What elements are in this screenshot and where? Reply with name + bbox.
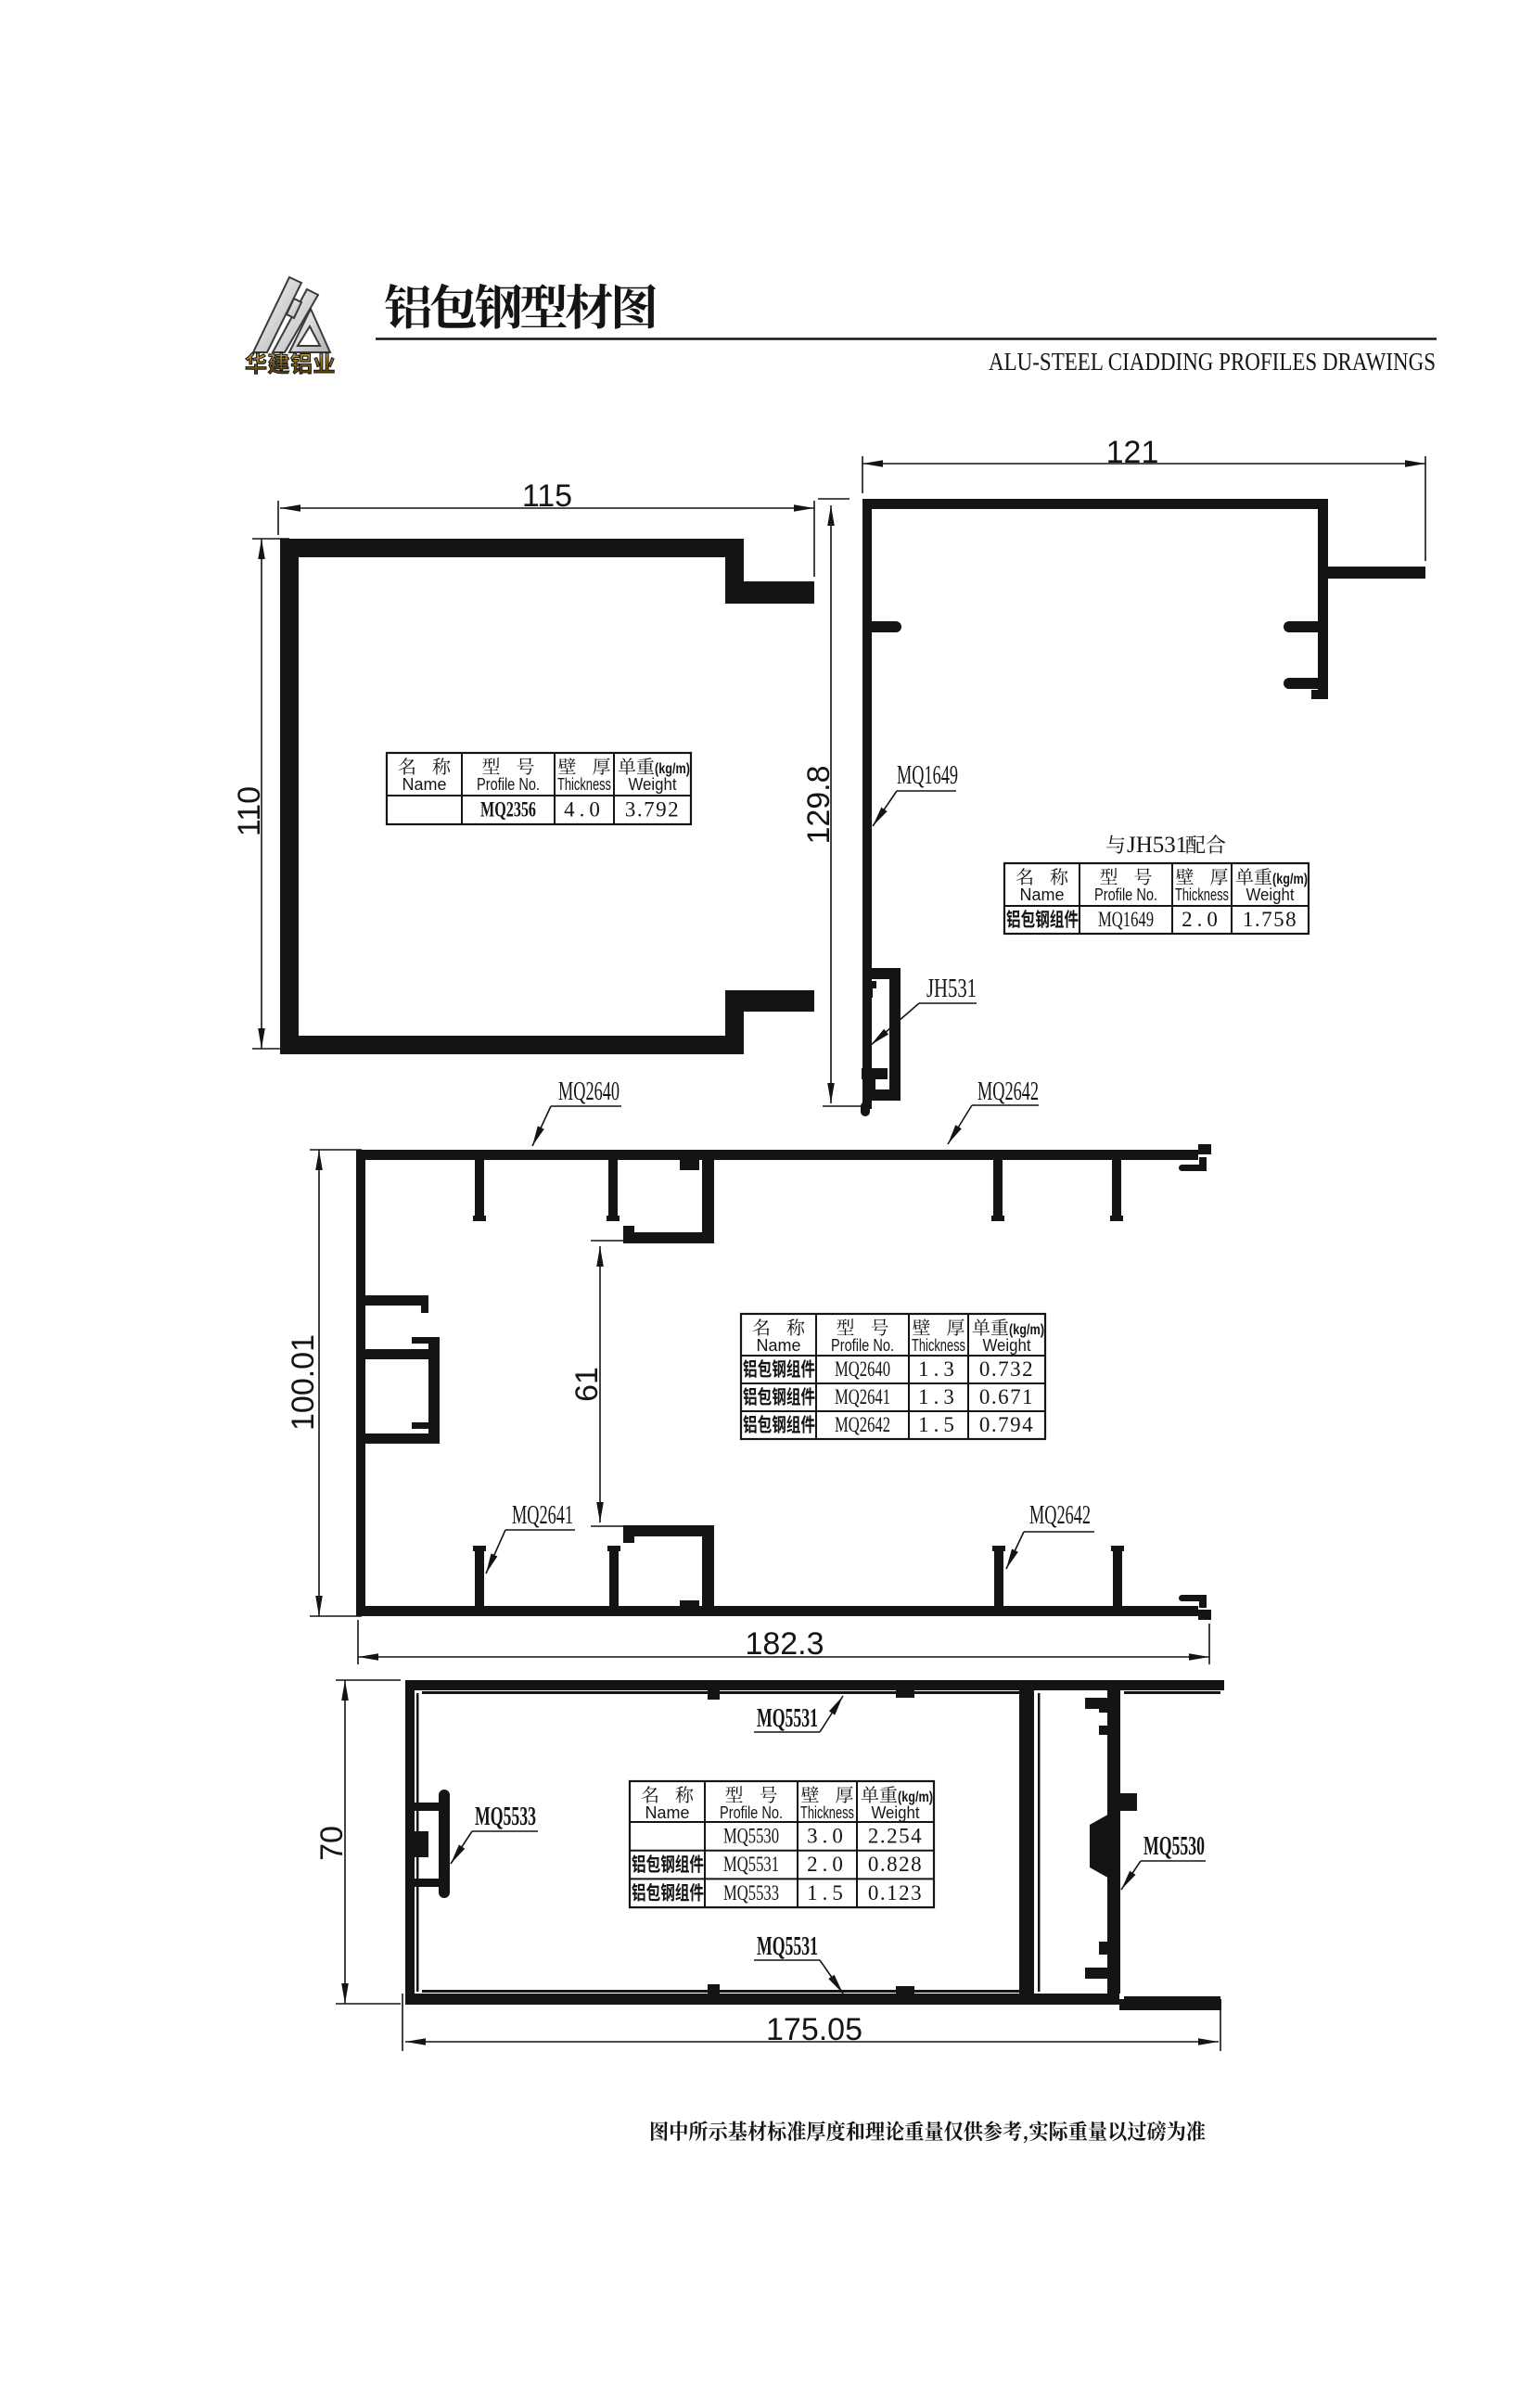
- svg-text:JH531: JH531: [926, 975, 977, 1003]
- svg-text:Weight: Weight: [1246, 885, 1295, 904]
- svg-text:2.0: 2.0: [807, 1853, 848, 1876]
- svg-text:MQ5533: MQ5533: [723, 1881, 779, 1905]
- svg-text:MQ2642: MQ2642: [835, 1413, 890, 1436]
- svg-text:Name: Name: [757, 1336, 801, 1355]
- svg-text:1.5: 1.5: [807, 1881, 848, 1905]
- svg-text:175.05: 175.05: [766, 2012, 862, 2047]
- svg-text:2.0: 2.0: [1182, 908, 1222, 931]
- svg-text:0.671: 0.671: [979, 1385, 1034, 1408]
- svg-text:MQ2640: MQ2640: [835, 1357, 890, 1381]
- svg-text:ALU-STEEL CIADDING PROFILES DR: ALU-STEEL CIADDING PROFILES DRAWINGS: [989, 348, 1436, 376]
- svg-text:Profile No.: Profile No.: [477, 775, 540, 794]
- svg-text:MQ2640: MQ2640: [558, 1077, 620, 1106]
- svg-text:2.254: 2.254: [868, 1824, 923, 1847]
- svg-text:MQ2641: MQ2641: [835, 1385, 890, 1408]
- svg-text:182.3: 182.3: [745, 1626, 824, 1662]
- svg-text:MQ5533: MQ5533: [475, 1803, 536, 1831]
- svg-text:JH531: JH531: [1127, 833, 1187, 858]
- svg-text:Profile No.: Profile No.: [831, 1336, 894, 1355]
- svg-text:Name: Name: [1020, 885, 1065, 904]
- svg-text:Name: Name: [645, 1803, 690, 1822]
- svg-text:61: 61: [569, 1367, 605, 1402]
- svg-text:0.123: 0.123: [868, 1881, 923, 1905]
- svg-text:Weight: Weight: [872, 1803, 920, 1822]
- svg-text:MQ5531: MQ5531: [723, 1853, 779, 1876]
- svg-text:115: 115: [522, 478, 572, 514]
- svg-text:1.758: 1.758: [1243, 908, 1297, 931]
- svg-text:Thickness: Thickness: [1175, 885, 1229, 904]
- svg-text:Thickness: Thickness: [800, 1803, 854, 1822]
- svg-text:MQ2356: MQ2356: [480, 798, 536, 822]
- svg-text:Profile No.: Profile No.: [1094, 885, 1157, 904]
- svg-text:Weight: Weight: [983, 1336, 1031, 1355]
- svg-text:Thickness: Thickness: [912, 1336, 965, 1355]
- svg-text:0.732: 0.732: [979, 1357, 1034, 1381]
- svg-text:MQ2642: MQ2642: [977, 1077, 1039, 1106]
- svg-text:MQ5531: MQ5531: [757, 1704, 818, 1733]
- svg-text:121: 121: [1106, 435, 1159, 470]
- svg-text:Name: Name: [402, 775, 447, 794]
- svg-text:1.3: 1.3: [918, 1357, 959, 1381]
- svg-text:70: 70: [314, 1826, 350, 1861]
- svg-text:MQ2642: MQ2642: [1029, 1501, 1091, 1530]
- svg-text:Profile No.: Profile No.: [720, 1803, 783, 1822]
- svg-text:MQ1649: MQ1649: [1098, 908, 1154, 931]
- svg-text:129.8: 129.8: [801, 765, 837, 844]
- svg-text:100.01: 100.01: [286, 1334, 321, 1431]
- svg-text:3.0: 3.0: [807, 1824, 848, 1847]
- svg-text:1.5: 1.5: [918, 1413, 959, 1436]
- svg-text:1.3: 1.3: [918, 1385, 959, 1408]
- svg-text:0.794: 0.794: [979, 1413, 1034, 1436]
- svg-text:110: 110: [232, 786, 267, 836]
- svg-text:MQ1649: MQ1649: [897, 761, 958, 790]
- svg-text:3.792: 3.792: [625, 798, 680, 822]
- svg-text:Thickness: Thickness: [557, 775, 611, 794]
- svg-text:MQ2641: MQ2641: [512, 1501, 573, 1530]
- svg-text:MQ5530: MQ5530: [1143, 1832, 1205, 1861]
- svg-text:Weight: Weight: [629, 775, 677, 794]
- svg-text:4.0: 4.0: [564, 798, 605, 822]
- svg-text:MQ5531: MQ5531: [757, 1932, 818, 1961]
- svg-text:MQ5530: MQ5530: [723, 1824, 779, 1847]
- svg-text:0.828: 0.828: [868, 1853, 923, 1876]
